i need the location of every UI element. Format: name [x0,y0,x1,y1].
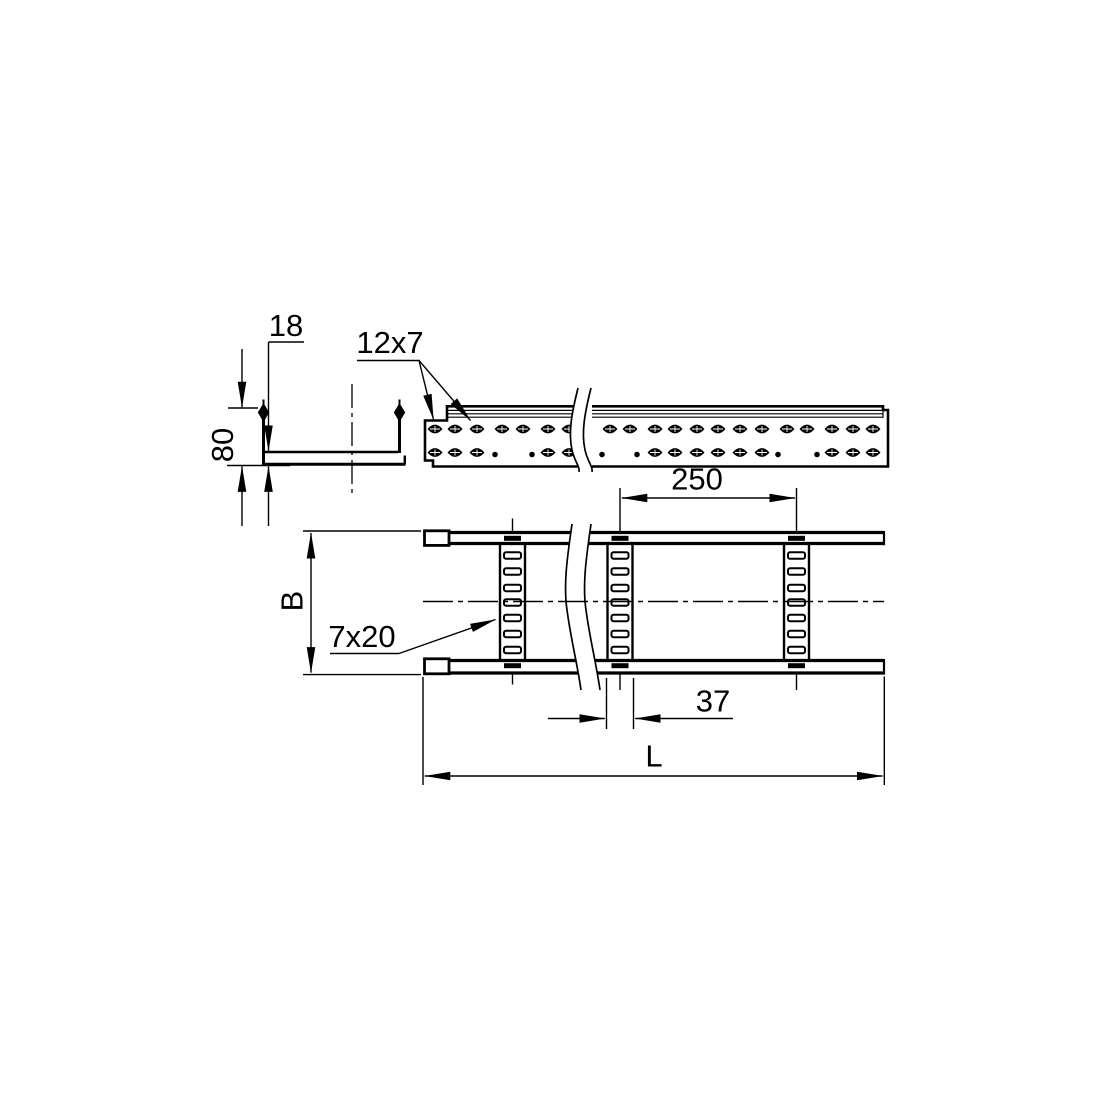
side-rails [425,531,885,675]
dim-37-value: 37 [696,684,730,719]
rung-end-slot [612,663,629,668]
rung-slot-hole [788,585,805,591]
break-mask [566,524,600,690]
rung-slot-hole [788,647,805,653]
side-left-outline [425,406,578,466]
dim-18-value: 18 [269,308,303,343]
rail-end-cap-bottom [425,659,450,674]
rung-end-slot [504,663,521,668]
side-dot-hole [599,452,605,458]
side-profile-right [592,406,888,466]
side-perforation-holes [428,425,881,458]
rung-slot-hole [504,552,521,558]
rung-slot-hole [788,615,805,621]
side-dot-hole [492,452,498,458]
rung-slot-hole [788,568,805,574]
rung-slot-hole [612,631,629,637]
channel-outline [258,400,406,466]
rung-slot-hole [612,552,629,558]
technical-drawing: 80 18 12x7 [0,0,1100,1100]
side-dot-hole [775,452,781,458]
dim-37: 37 [548,678,733,729]
rail-end-cap-top [425,531,450,546]
side-view: 12x7 [356,325,888,472]
side-right-outline [592,406,888,466]
rung-slot-hole [504,585,521,591]
rung-slot-hole [504,615,521,621]
dim-80-value: 80 [205,428,240,462]
rung-slot-hole [788,552,805,558]
rung-slot-hole [504,631,521,637]
rung-slot-hole [612,585,629,591]
dim-18: 18 [269,308,305,526]
rung [784,544,809,662]
dim-L-value: L [645,739,662,774]
side-break [570,388,592,472]
rung-slot-hole [612,599,629,605]
rung-slot-hole [788,599,805,605]
side-dot-hole [529,452,535,458]
rung-slot-hole [504,568,521,574]
dim-80: 80 [205,349,290,526]
rung-slot-hole [612,647,629,653]
label-12x7-text: 12x7 [356,325,423,360]
rung-slot-hole [504,647,521,653]
label-7x20-leader [399,620,496,654]
rung-end-slot [788,663,805,668]
rung [608,544,633,662]
rung-slot-hole [788,631,805,637]
side-dot-hole [814,452,820,458]
rung-slot-hole [504,599,521,605]
rung-end-slot [788,536,805,541]
rung-end-slot [504,536,521,541]
dim-250-value: 250 [671,462,723,497]
label-7x20-text: 7x20 [328,619,395,654]
label-7x20: 7x20 [328,619,495,654]
rung-end-slot [612,536,629,541]
rung-slot-hole [612,568,629,574]
rung-slot-hole [612,615,629,621]
plan-break [566,524,600,690]
rungs [500,544,809,662]
plan-view: 250 B 7x20 37 L [275,462,885,786]
side-dot-hole [634,452,640,458]
side-profile-left [425,406,578,466]
dim-B-value: B [275,591,310,612]
drawing-page: 80 18 12x7 [0,0,1100,1100]
dim-L: L [423,677,884,786]
rung [500,544,525,662]
